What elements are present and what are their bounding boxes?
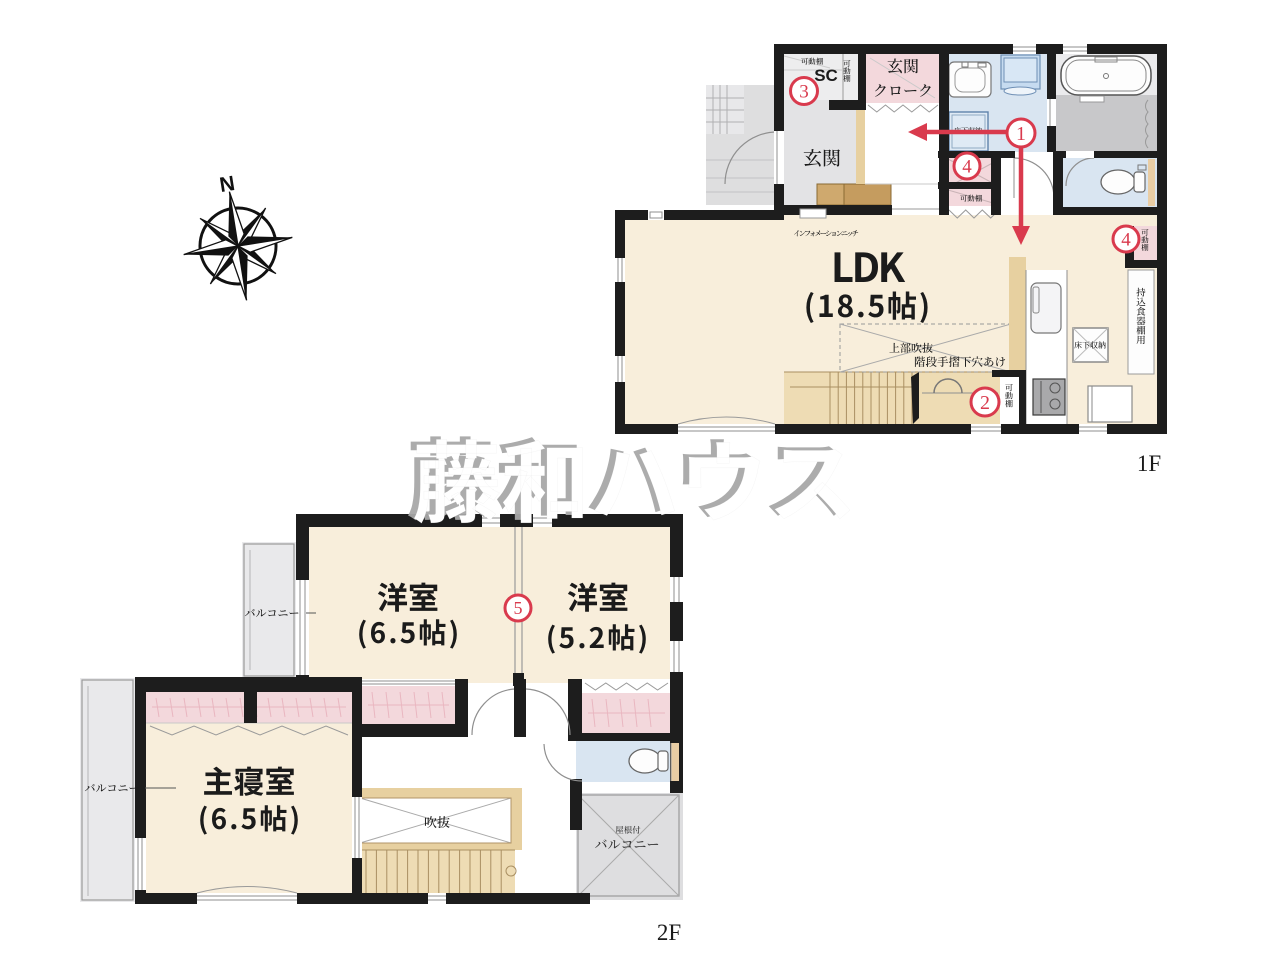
svg-text:3: 3 [799, 82, 809, 103]
svg-text:1: 1 [1016, 123, 1026, 145]
svg-text:4: 4 [962, 157, 972, 178]
svg-text:2: 2 [980, 392, 990, 414]
svg-text:SC: SC [814, 66, 838, 85]
svg-text:2F: 2F [657, 920, 681, 945]
svg-text:1F: 1F [1137, 451, 1161, 476]
svg-text:5: 5 [514, 598, 523, 618]
svg-text:4: 4 [1121, 230, 1131, 251]
